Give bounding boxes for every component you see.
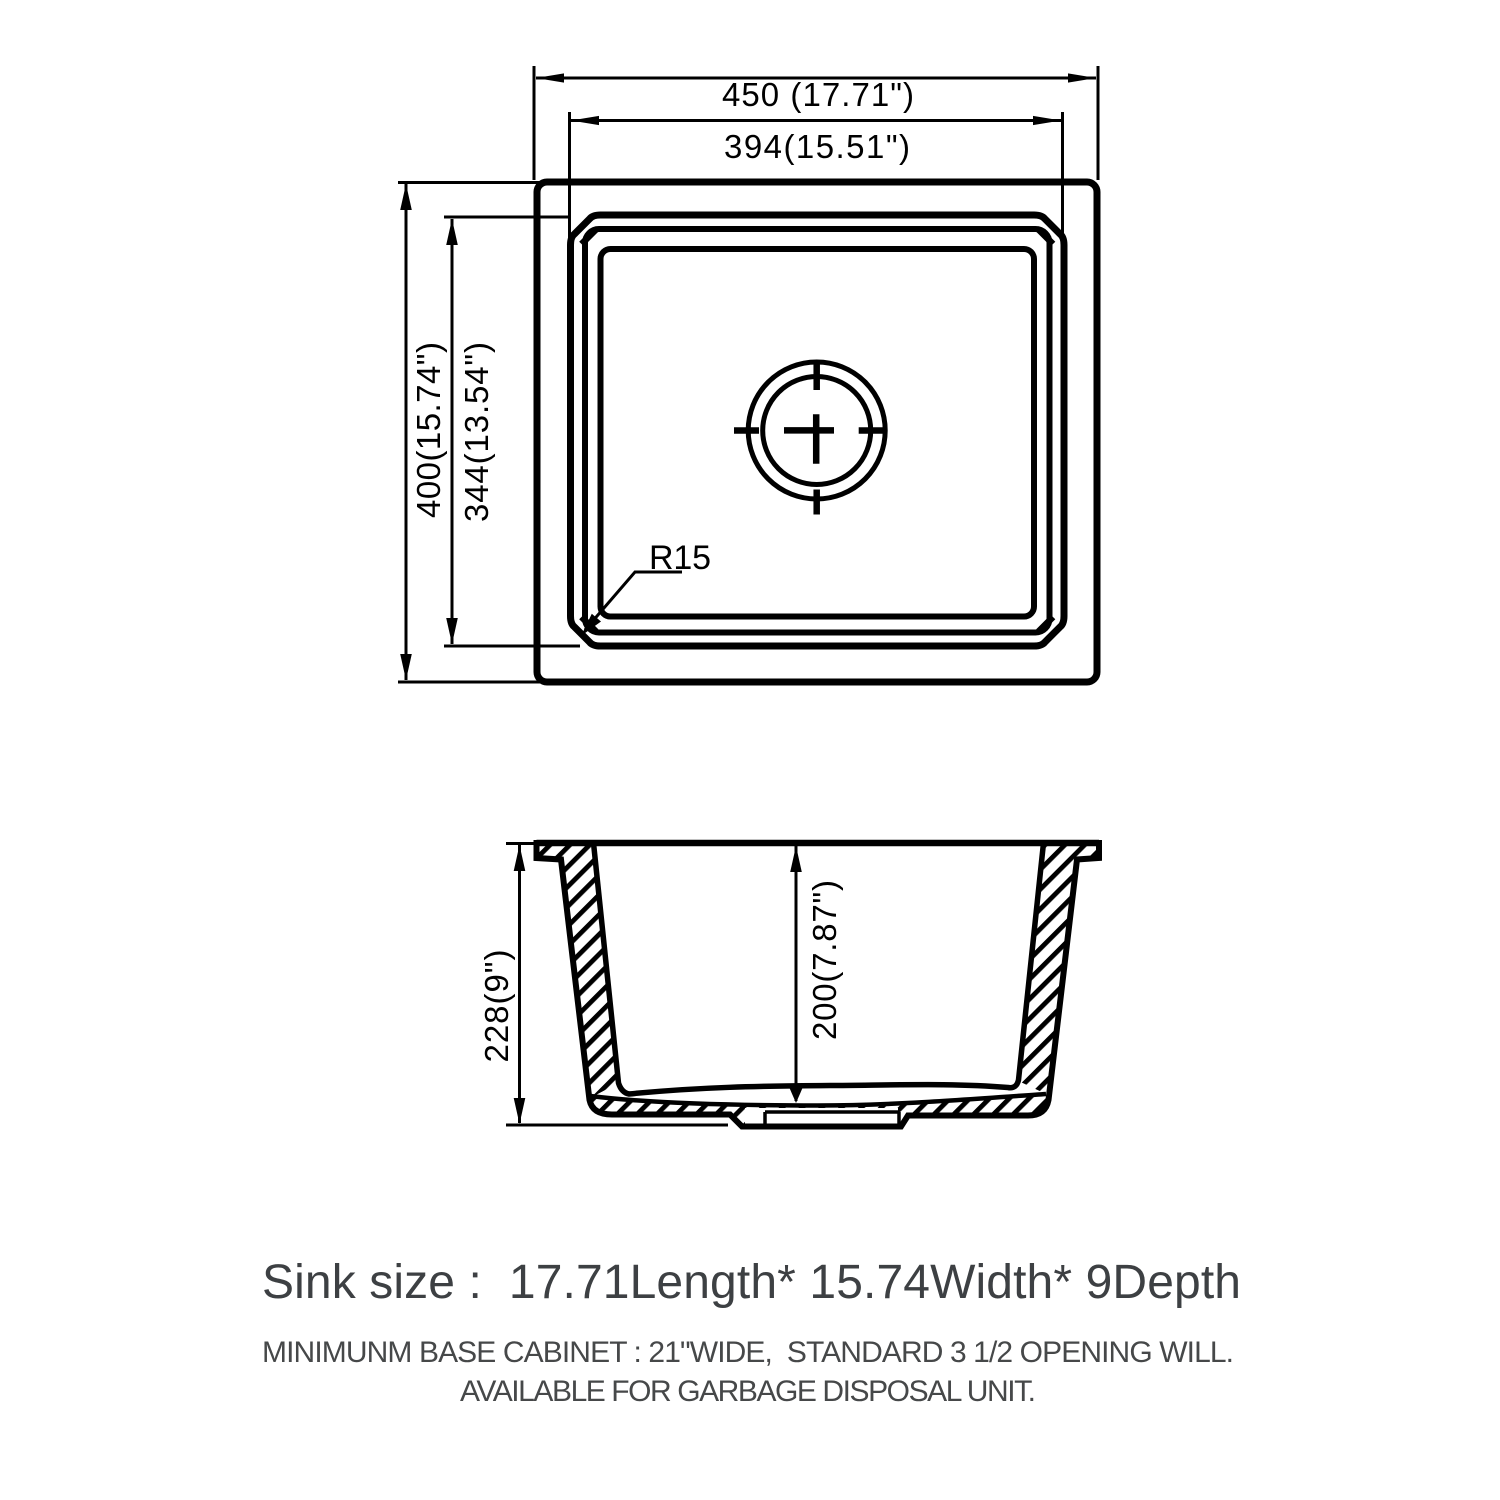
svg-text:394(15.51"): 394(15.51") bbox=[724, 128, 910, 165]
svg-text:344(13.54"): 344(13.54") bbox=[458, 342, 495, 522]
svg-text:228(9"): 228(9") bbox=[478, 950, 515, 1063]
svg-text:450 (17.71"): 450 (17.71") bbox=[722, 76, 914, 113]
svg-text:MINIMUNM BASE CABINET : 21"WID: MINIMUNM BASE CABINET : 21"WIDE, STANDAR… bbox=[262, 1336, 1234, 1369]
svg-text:400(15.74"): 400(15.74") bbox=[410, 342, 447, 518]
svg-text:Sink size : 17.71Length* 15.7: Sink size : 17.71Length* 15.74Width* 9De… bbox=[262, 1256, 1241, 1309]
svg-text:AVAILABLE FOR GARBAGE DISPOSAL: AVAILABLE FOR GARBAGE DISPOSAL UNIT. bbox=[460, 1375, 1036, 1408]
svg-text:200(7.87"): 200(7.87") bbox=[806, 880, 843, 1040]
